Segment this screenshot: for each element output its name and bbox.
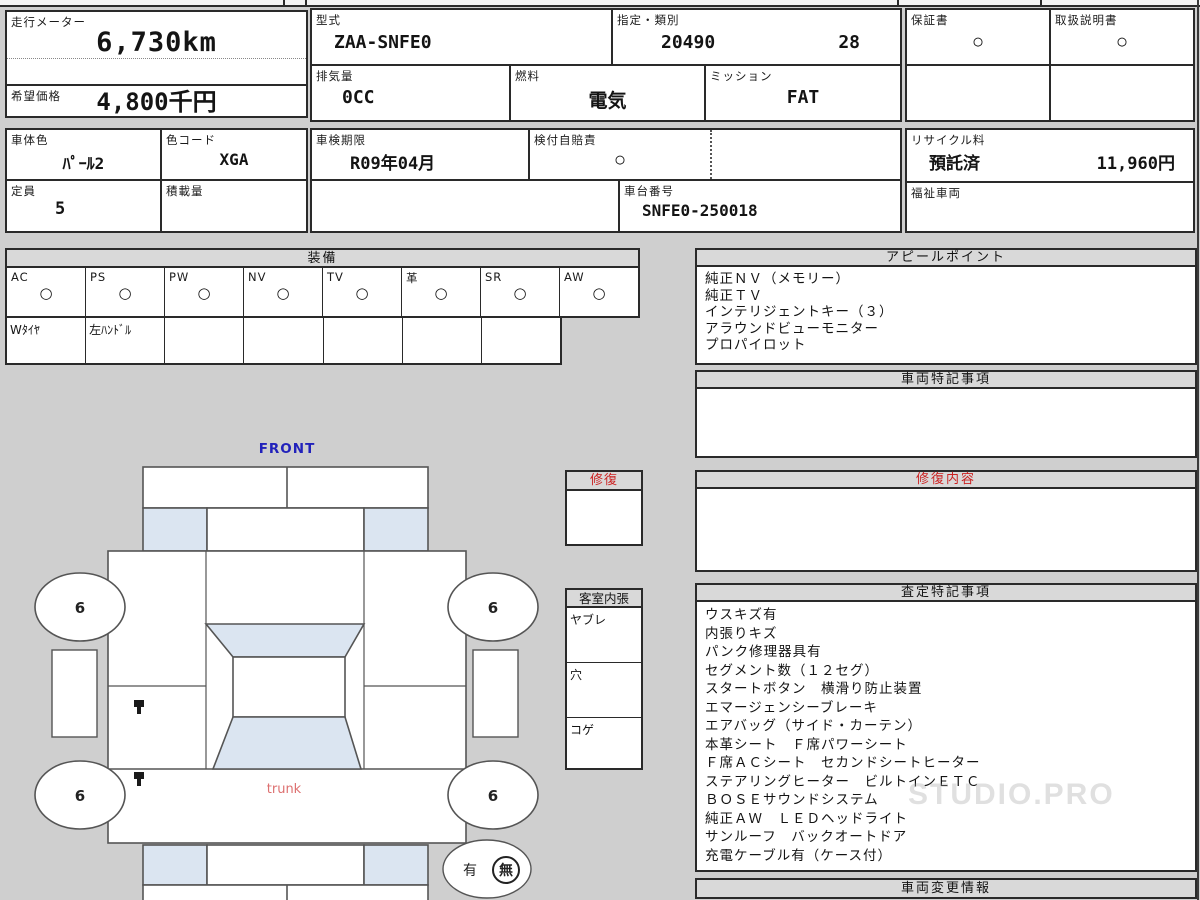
appeal-item: アラウンドビューモニター [705,321,1187,338]
welfare-label: 福祉車両 [911,185,961,201]
equip-col-label: 革 [406,270,419,286]
top-cropped-row [0,0,1200,7]
manual-label: 取扱説明書 [1055,12,1118,28]
front-bumper [143,467,428,508]
inspection-label: 車検期限 [316,132,366,148]
side-panel-right [473,650,518,737]
car-damage-diagram: FRONT trunk 6 6 6 6 有 無 [0,430,540,900]
special-notes-title: 車両特記事項 [695,370,1197,389]
grid-line [283,0,285,7]
assessment-item: 内張りキズ [705,625,1187,644]
repair-detail-title: 修復内容 [695,470,1197,489]
front-fender-left [143,508,207,551]
assessment-item: 純正ＡＷ ＬＥＤヘッドライト [705,810,1187,829]
wheel-depth-value: 6 [488,787,498,805]
equip-col-label: NV [248,270,266,284]
equip-col-label: SR [485,270,502,284]
assessment-item: Ｆ席ＡＣシート セカンドシートヒーター [705,754,1187,773]
fuel-label: 燃料 [515,68,540,84]
divider [7,58,306,59]
equipment-title: 装備 [5,248,640,268]
assessment-item: ウスキズ有 [705,606,1187,625]
grid-line [897,0,899,7]
color-code-label: 色コード [166,132,216,148]
displacement-label: 排気量 [316,68,354,84]
warranty-label: 保証書 [911,12,949,28]
assessment-section: 査定特記事項 ウスキズ有 内張りキズ パンク修理器具有 セグメント数（１２セグ）… [695,583,1197,872]
class-sub: 28 [838,32,860,53]
odometer-label: 走行メーター [11,14,86,30]
front-fender-right [364,508,428,551]
roof [233,657,345,717]
equip-col-label: AC [11,270,29,284]
equip-col-label: AW [564,270,585,284]
load-label: 積載量 [166,183,204,199]
equip-col-label: TV [327,270,344,284]
assessment-item: サンルーフ バックオートドア [705,828,1187,847]
recycle-status: 預託済 [929,149,980,174]
interior-row: 穴 [570,666,582,683]
grid-line [1040,0,1042,7]
interior-row: ヤブレ [570,611,606,628]
hood [207,508,364,551]
assessment-item: エマージェンシーブレーキ [705,699,1187,718]
insurance-label: 検付自賠責 [534,132,597,148]
appeal-section: アピールポイント 純正ＮＶ（メモリー） 純正ＴＶ インテリジェントキー（３） ア… [695,248,1197,365]
rear-bumper [143,885,428,900]
wheel-depth-value: 6 [75,787,85,805]
interior-box: 客室内張 ヤブレ 穴 コゲ [565,588,643,770]
equip-note: 左ﾊﾝﾄﾞﾙ [89,321,131,338]
capacity-label: 定員 [11,183,36,199]
appeal-item: プロパイロット [705,337,1187,354]
recycle-label: リサイクル料 [911,132,985,148]
recycle-fee: 11,960円 [1097,149,1175,174]
wheel-depth-value: 6 [75,599,85,617]
change-info-section: 車両変更情報 [695,878,1197,899]
assessment-item: セグメント数（１２セグ） [705,662,1187,681]
odometer-price-box: 走行メーター 6,730km 希望価格 4,800千円 [5,10,308,118]
inspection-chassis-box: 車検期限 R09年04月 検付自賠責 ○ 車台番号 SNFE0-250018 [310,128,902,233]
repair-flag-box: 修復 [565,470,643,546]
assessment-item: 本革シート Ｆ席パワーシート [705,736,1187,755]
color-capacity-box: 車体色 ﾊﾟｰﾙ2 色コード XGA 定員 5 積載量 [5,128,308,233]
assessment-item: ステアリングヒーター ビルトインＥＴＣ [705,773,1187,792]
appeal-item: インテリジェントキー（３） [705,304,1187,321]
equip-col-label: PW [169,270,189,284]
windshield [206,624,364,657]
presence-ellipse [443,840,531,898]
auction-sheet: 走行メーター 6,730km 希望価格 4,800千円 車体色 ﾊﾟｰﾙ2 色コ… [0,0,1200,900]
repair-flag-title: 修復 [565,470,643,491]
wheel-depth-value: 6 [488,599,498,617]
assessment-item: 充電ケーブル有（ケース付） [705,847,1187,866]
class-label: 指定・類別 [617,12,680,28]
chassis-label: 車台番号 [624,183,674,199]
assessment-item: パンク修理器具有 [705,643,1187,662]
recycle-box: リサイクル料 預託済 11,960円 福祉車両 [905,128,1195,233]
assessment-title: 査定特記事項 [695,583,1197,602]
sheet-right-edge [1197,0,1199,900]
model-value: ZAA-SNFE0 [312,10,611,53]
special-notes-section: 車両特記事項 [695,370,1197,458]
appeal-item: 純正ＮＶ（メモリー） [705,271,1187,288]
interior-title: 客室内張 [565,588,643,608]
rear-window [213,717,361,769]
grid-line [305,0,307,7]
model-engine-box: 型式 ZAA-SNFE0 指定・類別 20490 28 排気量 0CC 燃料 電… [310,8,902,122]
warranty-manual-box: 保証書 ○ 取扱説明書 ○ [905,8,1195,122]
presence-yes-label: 有 [463,863,477,879]
equipment-table: 装備 AC○ PS○ PW○ NV○ TV○ 革○ SR○ AW○ Wﾀｲﾔ 左… [5,248,640,365]
class-no: 20490 [661,32,715,53]
transmission-label: ミッション [710,68,773,84]
side-panel-left [52,650,97,737]
appeal-item: 純正ＴＶ [705,288,1187,305]
interior-row: コゲ [570,721,594,738]
rear-fender-right [364,845,428,885]
assessment-item: ＢＯＳＥサウンドシステム [705,791,1187,810]
trunk-label: trunk [267,782,302,797]
repair-detail-section: 修復内容 [695,470,1197,572]
front-label: FRONT [259,441,316,457]
price-label: 希望価格 [11,88,61,104]
presence-no-label: 無 [499,862,513,879]
assessment-item: スタートボタン 横滑り防止装置 [705,680,1187,699]
rear-deck [207,845,364,885]
equip-col-label: PS [90,270,106,284]
rear-fender-left [143,845,207,885]
assessment-item: エアバッグ（サイド・カーテン） [705,717,1187,736]
model-label: 型式 [316,12,341,28]
body-color-label: 車体色 [11,132,49,148]
equip-note: Wﾀｲﾔ [10,321,40,338]
change-info-title: 車両変更情報 [695,878,1197,899]
appeal-title: アピールポイント [695,248,1197,267]
